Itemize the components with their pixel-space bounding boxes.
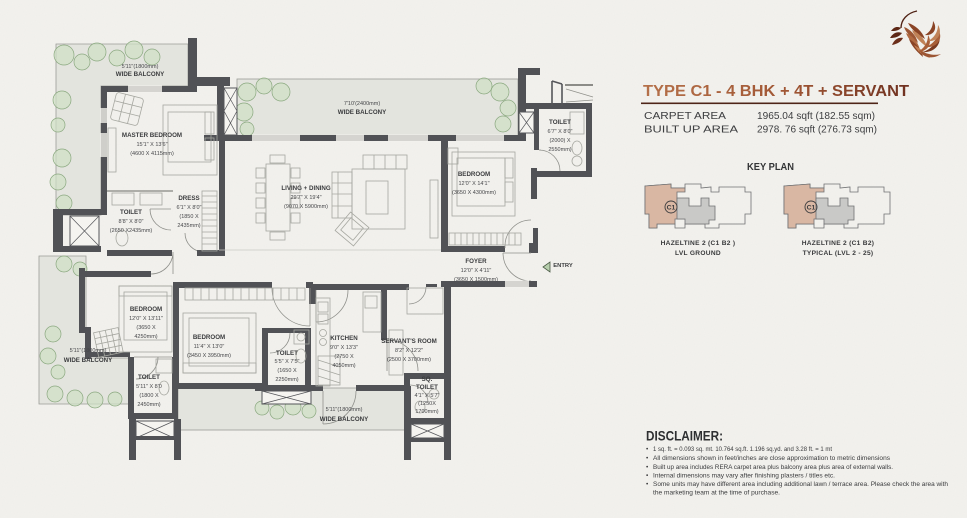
svg-text:8'2" X 12'2": 8'2" X 12'2" [395, 348, 423, 354]
svg-text:5'11"(1800mm): 5'11"(1800mm) [122, 64, 159, 70]
svg-text:(1650 X: (1650 X [277, 368, 297, 374]
svg-text:(2650 X2435mm): (2650 X2435mm) [110, 228, 153, 234]
svg-text:the marketing team at the time: the marketing team at the time of purcha… [653, 490, 780, 497]
svg-text:6'7" X 8'0": 6'7" X 8'0" [548, 129, 573, 135]
svg-text:(2750 X: (2750 X [334, 354, 354, 360]
svg-text:4050mm): 4050mm) [332, 363, 355, 369]
svg-text:BUILT UP AREA: BUILT UP AREA [644, 124, 738, 136]
svg-text:1 sq. ft. = 0.093 sq. mt. 10.7: 1 sq. ft. = 0.093 sq. mt. 10.764 sq.ft. … [653, 446, 832, 453]
svg-text:Built up area includes RERA ca: Built up area includes RERA carpet area … [653, 464, 893, 471]
svg-text:7'10'(2400mm): 7'10'(2400mm) [344, 101, 381, 107]
svg-text:TOILET: TOILET [120, 209, 142, 216]
svg-text:TOILET: TOILET [549, 119, 571, 126]
svg-text:8'8" X 8'0": 8'8" X 8'0" [119, 219, 144, 225]
svg-text:(2000) X: (2000) X [549, 138, 570, 144]
svg-text:2250mm): 2250mm) [275, 377, 298, 383]
svg-text:2978. 76 sqft (276.73 sqm): 2978. 76 sqft (276.73 sqm) [757, 124, 877, 136]
svg-text:(3450 X 3950mm): (3450 X 3950mm) [187, 353, 231, 359]
svg-text:5'11"(1800mm): 5'11"(1800mm) [326, 407, 363, 413]
svg-text:DRESS: DRESS [178, 195, 199, 202]
svg-text:12'0" X 4'11": 12'0" X 4'11" [461, 268, 492, 274]
svg-text:(1800 X: (1800 X [139, 393, 159, 399]
svg-text:C1: C1 [807, 205, 816, 212]
svg-text:11'4" X 13'0": 11'4" X 13'0" [194, 344, 225, 350]
svg-text:4'1" X 5'7": 4'1" X 5'7" [415, 393, 440, 399]
svg-text:HAZELTINE 2 (C1 B2): HAZELTINE 2 (C1 B2) [802, 240, 875, 247]
svg-text:KEY PLAN: KEY PLAN [747, 161, 794, 173]
svg-text:SQ.: SQ. [422, 376, 433, 383]
svg-text:TYPE C1 - 4 BHK + 4T + SERVANT: TYPE C1 - 4 BHK + 4T + SERVANT [643, 83, 909, 100]
svg-text:12'0" X 14'1": 12'0" X 14'1" [458, 181, 489, 187]
svg-text:29'7" X 19'4": 29'7" X 19'4" [290, 195, 321, 201]
svg-text:(3650 X 1500mm): (3650 X 1500mm) [454, 277, 498, 283]
svg-text:15'1" X 13'6": 15'1" X 13'6" [136, 142, 167, 148]
svg-text:5'11" X 8'0: 5'11" X 8'0 [136, 384, 162, 390]
svg-text:BEDROOM: BEDROOM [130, 306, 162, 313]
svg-text:TOILET: TOILET [416, 384, 438, 391]
svg-text:DISCLAIMER:: DISCLAIMER: [646, 429, 723, 444]
svg-text:BEDROOM: BEDROOM [458, 171, 490, 178]
svg-text:(3650 X: (3650 X [136, 325, 156, 331]
svg-text:1700mm): 1700mm) [415, 409, 438, 415]
svg-text:LVL GROUND: LVL GROUND [675, 250, 721, 257]
svg-text:C1: C1 [667, 205, 676, 212]
svg-text:(3650 X 4300mm): (3650 X 4300mm) [452, 190, 496, 196]
svg-text:(1250X: (1250X [418, 401, 436, 407]
svg-text:9'0" X 13'3": 9'0" X 13'3" [330, 345, 358, 351]
svg-text:12'0" X 13'11": 12'0" X 13'11" [129, 316, 163, 322]
svg-text:TOILET: TOILET [138, 374, 160, 381]
svg-text:TYPICAL (LVL 2 - 25): TYPICAL (LVL 2 - 25) [803, 250, 874, 257]
svg-text:HAZELTINE 2 (C1 B2 ): HAZELTINE 2 (C1 B2 ) [661, 240, 736, 247]
svg-text:6'1" X 8'0": 6'1" X 8'0" [177, 205, 202, 211]
svg-text:FOYER: FOYER [465, 258, 487, 265]
svg-text:5'11"(1800mm): 5'11"(1800mm) [70, 348, 107, 354]
svg-text:KITCHEN: KITCHEN [330, 335, 358, 342]
svg-text:2435mm): 2435mm) [177, 223, 200, 229]
svg-text:(2500 X 3700mm): (2500 X 3700mm) [387, 357, 431, 363]
svg-text:4250mm): 4250mm) [134, 334, 157, 340]
svg-text:BEDROOM: BEDROOM [193, 334, 225, 341]
svg-text:SERVANT'S ROOM: SERVANT'S ROOM [381, 338, 437, 345]
svg-text:(1850 X: (1850 X [179, 214, 199, 220]
svg-text:Internal dimensions may vary a: Internal dimensions may vary after finis… [653, 473, 835, 480]
svg-text:WIDE BALCONY: WIDE BALCONY [64, 357, 113, 364]
svg-text:WIDE BALCONY: WIDE BALCONY [338, 109, 387, 116]
svg-text:MASTER BEDROOM: MASTER BEDROOM [122, 132, 182, 139]
svg-text:2550mm): 2550mm) [548, 147, 571, 153]
svg-text:LIVING + DINING: LIVING + DINING [281, 185, 331, 192]
svg-text:(9070 X 5900mm): (9070 X 5900mm) [284, 204, 328, 210]
svg-text:All dimensions shown in feet/i: All dimensions shown in feet/inches are … [653, 455, 891, 462]
svg-text:WIDE BALCONY: WIDE BALCONY [320, 416, 369, 423]
svg-text:5'5" X 7'5": 5'5" X 7'5" [275, 359, 300, 365]
svg-text:(4600 X 4115mm): (4600 X 4115mm) [130, 151, 174, 157]
svg-text:WIDE BALCONY: WIDE BALCONY [116, 71, 165, 78]
svg-text:ENTRY: ENTRY [553, 263, 573, 269]
svg-text:2450mm): 2450mm) [137, 402, 160, 408]
svg-text:Some units may have different: Some units may have different area inclu… [653, 481, 948, 488]
svg-text:TOILET: TOILET [276, 350, 298, 357]
svg-text:1965.04 sqft (182.55 sqm): 1965.04 sqft (182.55 sqm) [757, 110, 875, 122]
svg-text:CARPET AREA: CARPET AREA [644, 110, 726, 122]
